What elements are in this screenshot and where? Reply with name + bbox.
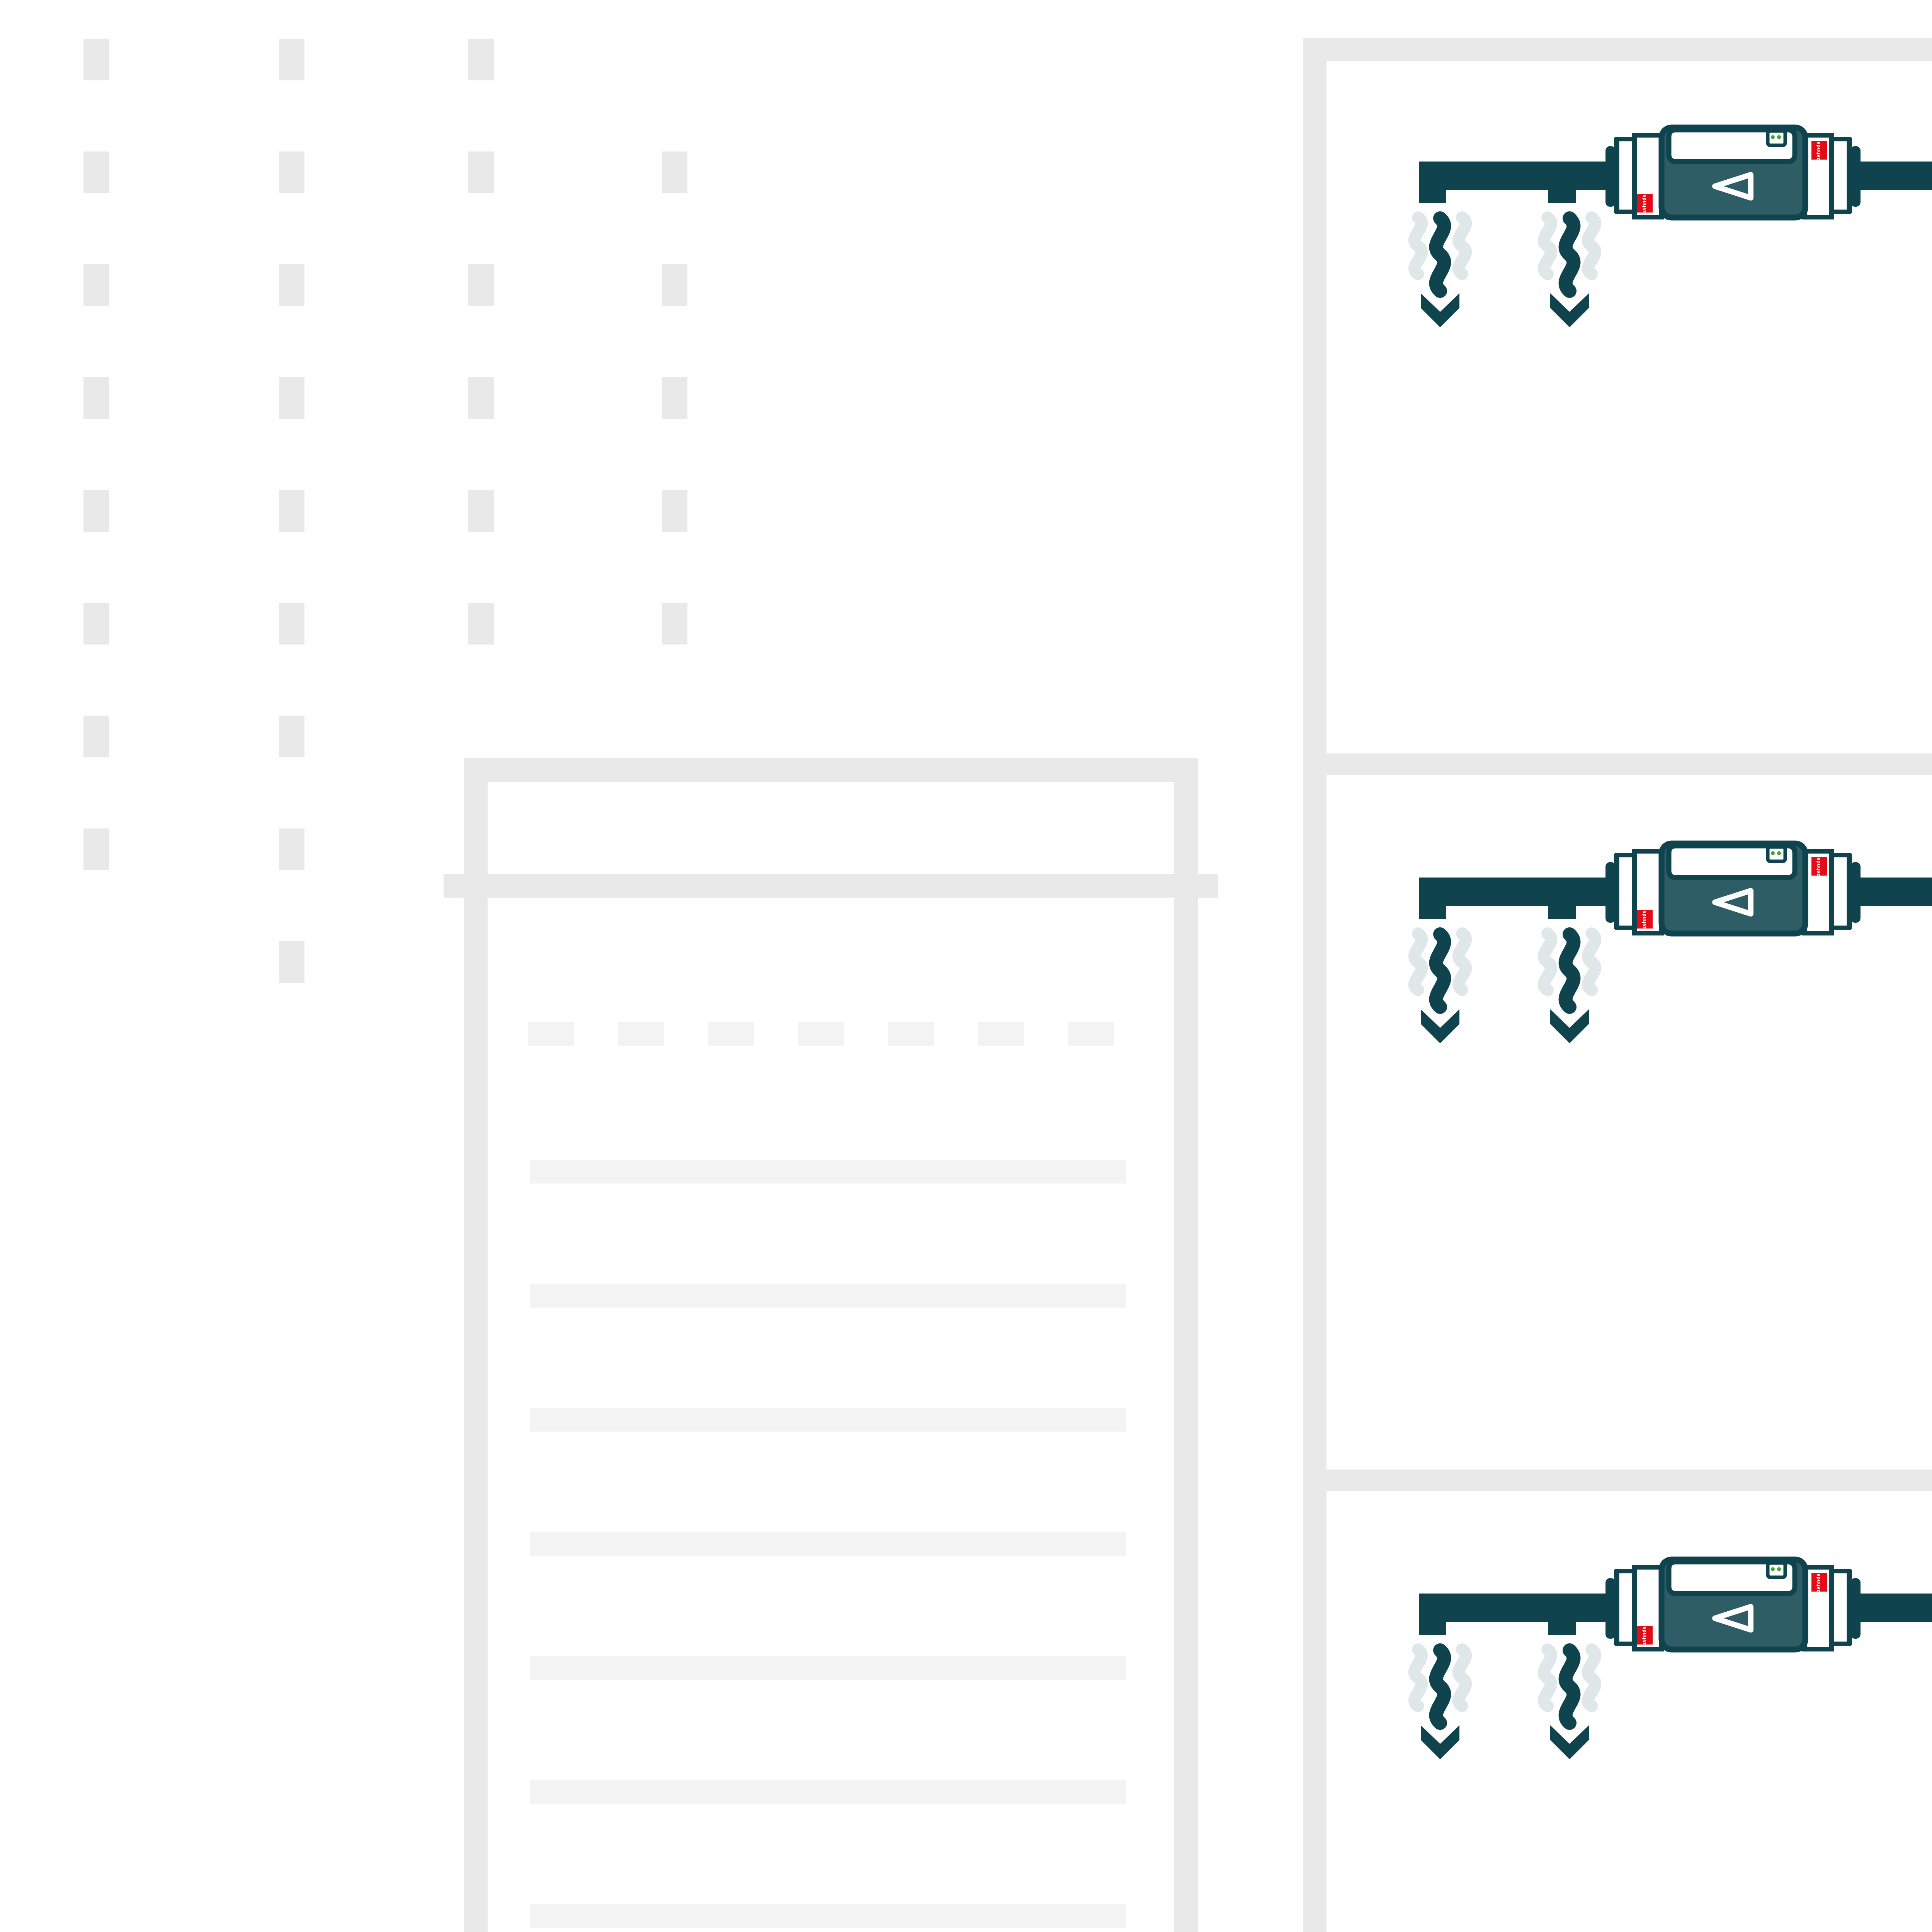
skyline-dash-col1 (83, 377, 109, 419)
skyline-dash-col3 (468, 264, 494, 306)
skyline-dash-col2 (279, 490, 304, 532)
floor-line (530, 1284, 1126, 1308)
skyline-dash-col2 (279, 264, 304, 306)
floor-line (530, 1408, 1126, 1432)
skyline-dash-col2 (279, 377, 304, 419)
skyline-dash-col2 (279, 603, 304, 645)
left-building-ledge (444, 874, 1218, 898)
skyline-dash-col4 (662, 264, 687, 306)
left-building-wall (464, 758, 488, 1932)
skyline-dash-col4 (662, 377, 687, 419)
floor-line (530, 1656, 1126, 1680)
window-dash (798, 1022, 844, 1046)
skyline-dash-col2 (279, 716, 304, 757)
window-dash (1068, 1022, 1114, 1046)
window-dash (618, 1022, 664, 1046)
skyline-dash-col2 (279, 39, 304, 80)
skyline-dash-col3 (468, 39, 494, 80)
skyline-dash-col2 (279, 828, 304, 870)
skyline-dash-col2 (279, 941, 304, 983)
window-dash (888, 1022, 934, 1046)
skyline-dash-col1 (83, 490, 109, 532)
skyline-dash-col4 (662, 490, 687, 532)
window-dash (528, 1022, 574, 1046)
main-building-roof (1303, 38, 1932, 61)
floor-slab (1327, 1469, 1932, 1491)
floor-line (530, 1532, 1126, 1556)
main-building-wall (1303, 38, 1327, 1932)
skyline-dash-col3 (468, 603, 494, 645)
floor-line (530, 1780, 1126, 1804)
skyline-dash-col3 (468, 377, 494, 419)
left-building-wall (1174, 758, 1198, 1932)
floor-slab (1327, 753, 1932, 775)
window-dash (708, 1022, 754, 1046)
skyline-dash-col1 (83, 716, 109, 757)
ventilation-system-diagram: zehnder zehnder (0, 0, 1932, 1932)
skyline-dash-col2 (279, 151, 304, 193)
floor-line (530, 1904, 1126, 1928)
skyline-dash-col1 (83, 603, 109, 645)
skyline-dash-col4 (662, 151, 687, 193)
skyline-dash-col3 (468, 151, 494, 193)
left-building-roof (464, 758, 1198, 782)
floor-line (530, 1160, 1126, 1184)
skyline-dash-col1 (83, 264, 109, 306)
skyline-dash-col1 (83, 828, 109, 870)
skyline-dash-col1 (83, 39, 109, 80)
skyline-dash-col1 (83, 151, 109, 193)
skyline-dash-col4 (662, 603, 687, 645)
skyline-dash-col3 (468, 490, 494, 532)
window-dash (978, 1022, 1024, 1046)
